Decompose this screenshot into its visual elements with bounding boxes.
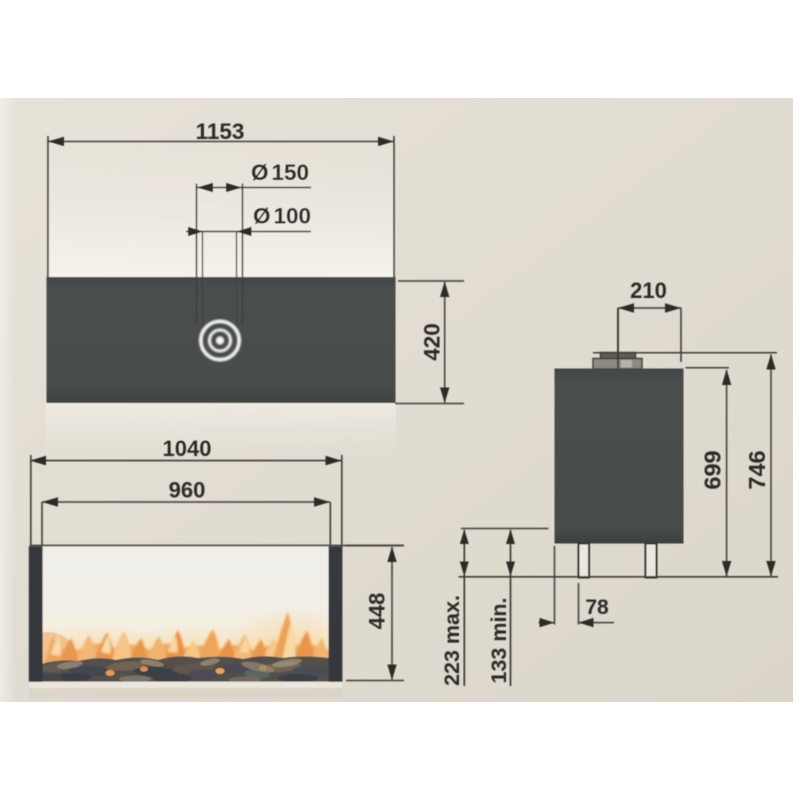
svg-text:1040: 1040	[163, 436, 212, 461]
svg-text:960: 960	[169, 478, 206, 503]
svg-text:78: 78	[585, 596, 609, 619]
svg-text:Ø150: Ø150	[251, 160, 309, 185]
svg-text:Ø100: Ø100	[253, 204, 311, 229]
svg-text:746: 746	[744, 450, 770, 489]
svg-text:1153: 1153	[196, 119, 245, 144]
svg-text:210: 210	[630, 278, 667, 303]
svg-text:448: 448	[365, 593, 390, 630]
svg-text:133 min.: 133 min.	[487, 597, 511, 683]
svg-text:223 max.: 223 max.	[440, 595, 464, 686]
svg-text:420: 420	[420, 323, 445, 361]
svg-text:699: 699	[700, 450, 726, 489]
